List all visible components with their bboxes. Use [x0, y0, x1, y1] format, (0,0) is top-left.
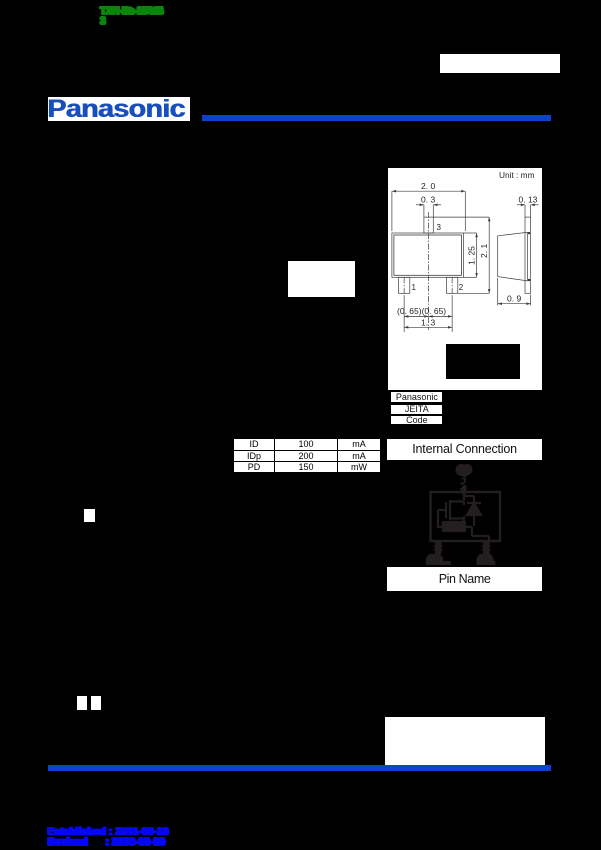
svg-text:0. 9: 0. 9 — [507, 294, 521, 304]
svg-text:3: 3 — [437, 223, 442, 232]
svg-text:(0. 65)(0. 65): (0. 65)(0. 65) — [397, 306, 446, 316]
svg-text:0. 3: 0. 3 — [421, 195, 435, 205]
svg-text:Unit : mm: Unit : mm — [499, 170, 535, 180]
svg-text:1. 3: 1. 3 — [421, 318, 435, 328]
svg-text:2. 1: 2. 1 — [479, 244, 489, 258]
svg-text:1. 25: 1. 25 — [467, 246, 477, 265]
svg-text:1: 1 — [412, 283, 417, 292]
svg-text:2: 2 — [459, 283, 464, 292]
svg-text:0. 13: 0. 13 — [519, 195, 538, 205]
svg-text:2. 0: 2. 0 — [421, 181, 435, 191]
